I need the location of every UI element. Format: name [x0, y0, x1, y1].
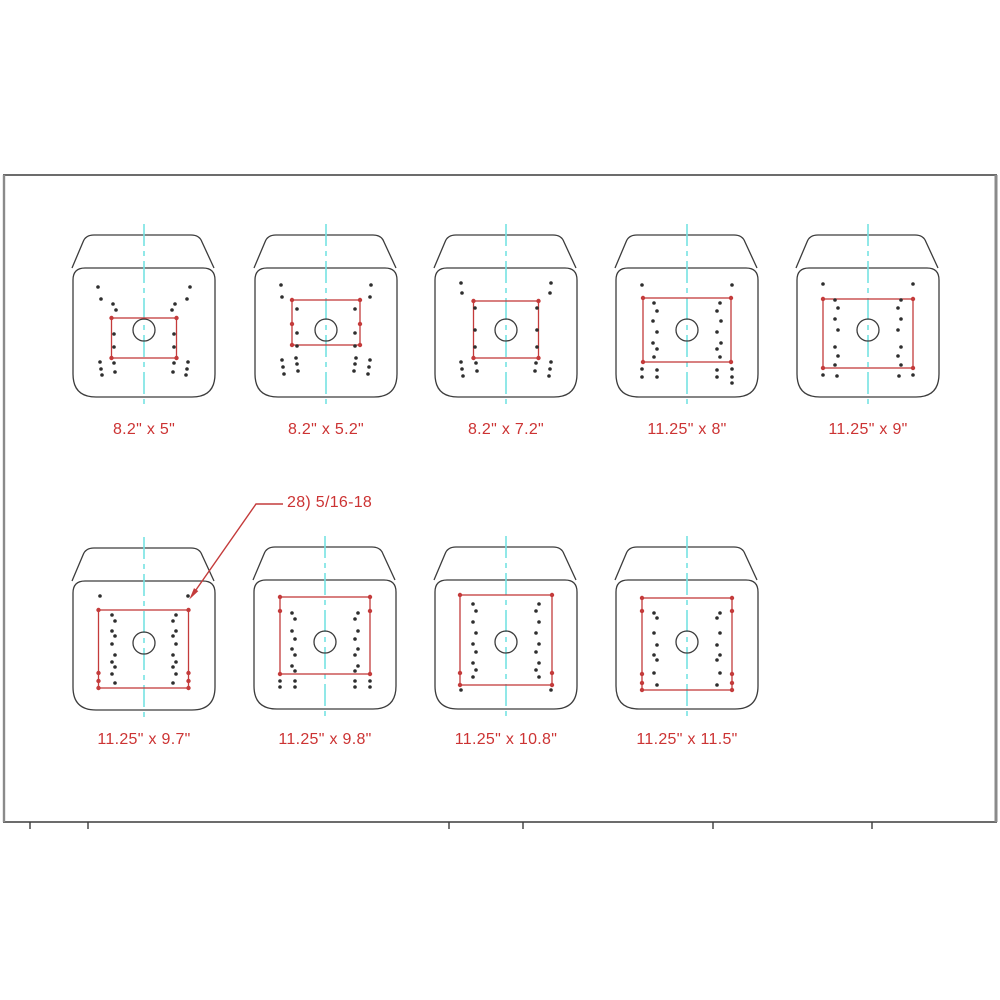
pattern-bolt-dot — [278, 609, 282, 613]
mounting-hole-dot — [537, 602, 541, 606]
seat-size-label-6: 11.25" x 9.7" — [97, 731, 190, 749]
mounting-hole-dot — [549, 281, 553, 285]
mounting-hole-dot — [353, 617, 357, 621]
mounting-hole-dot — [294, 356, 298, 360]
mounting-hole-dot — [460, 291, 464, 295]
mounting-hole-dot — [110, 672, 114, 676]
seat-size-label-9: 11.25" x 11.5" — [636, 731, 737, 749]
pattern-bolt-dot — [550, 683, 554, 687]
mounting-hole-dot — [368, 685, 372, 689]
mounting-hole-dot — [896, 354, 900, 358]
mounting-hole-dot — [715, 368, 719, 372]
mounting-hole-dot — [113, 665, 117, 669]
seat-size-label-7: 11.25" x 9.8" — [278, 731, 371, 749]
seat-back-flap-outline — [615, 235, 757, 268]
pattern-bolt-dot — [278, 595, 282, 599]
mounting-hole-dot — [174, 672, 178, 676]
mounting-hole-dot — [897, 374, 901, 378]
pattern-bolt-dot — [174, 356, 178, 360]
mounting-hole-dot — [280, 295, 284, 299]
mounting-hole-dot — [293, 617, 297, 621]
mounting-hole-dot — [896, 306, 900, 310]
mounting-hole-dot — [112, 345, 116, 349]
seat-size-label-5: 11.25" x 9" — [828, 421, 907, 439]
seat-back-flap-outline — [72, 548, 214, 581]
seat-size-label-3: 8.2" x 7.2" — [468, 421, 544, 439]
mounting-hole-dot — [534, 668, 538, 672]
mounting-hole-dot — [369, 283, 373, 287]
mounting-hole-dot — [171, 370, 175, 374]
mounting-hole-dot — [295, 344, 299, 348]
mounting-hole-dot — [718, 611, 722, 615]
mounting-hole-dot — [899, 298, 903, 302]
mounting-hole-dot — [471, 602, 475, 606]
mounting-hole-dot — [548, 291, 552, 295]
mounting-hole-dot — [473, 345, 477, 349]
mounting-hole-dot — [100, 373, 104, 377]
mounting-hole-dot — [354, 356, 358, 360]
mounting-hole-dot — [535, 345, 539, 349]
mounting-hole-dot — [715, 330, 719, 334]
mounting-hole-dot — [655, 375, 659, 379]
seat-back-flap-outline — [796, 235, 938, 268]
mounting-hole-dot — [655, 309, 659, 313]
pattern-bolt-dot — [730, 672, 734, 676]
mounting-hole-dot — [281, 365, 285, 369]
mounting-hole-dot — [110, 660, 114, 664]
pattern-bolt-dot — [640, 609, 644, 613]
mounting-hole-dot — [353, 344, 357, 348]
mounting-hole-dot — [471, 661, 475, 665]
mounting-hole-dot — [652, 671, 656, 675]
mounting-hole-dot — [98, 594, 102, 598]
pattern-bolt-dot — [729, 296, 733, 300]
mounting-hole-dot — [293, 679, 297, 683]
mounting-hole-dot — [535, 306, 539, 310]
pattern-bolt-dot — [458, 593, 462, 597]
mounting-hole-dot — [547, 374, 551, 378]
mounting-hole-dot — [353, 653, 357, 657]
mounting-hole-dot — [718, 355, 722, 359]
seat-drawing-9 — [615, 536, 758, 720]
pattern-bolt-dot — [290, 298, 294, 302]
pattern-bolt-dot — [730, 681, 734, 685]
mounting-hole-dot — [640, 283, 644, 287]
seat-drawing-2 — [254, 224, 397, 408]
mounting-hole-dot — [356, 611, 360, 615]
mounting-hole-dot — [295, 331, 299, 335]
mounting-hole-dot — [833, 345, 837, 349]
mounting-hole-dot — [184, 373, 188, 377]
pattern-bolt-dot — [186, 686, 190, 690]
mounting-hole-dot — [821, 282, 825, 286]
pattern-bolt-dot — [186, 608, 190, 612]
mounting-hole-dot — [652, 611, 656, 615]
mounting-hole-dot — [461, 374, 465, 378]
mounting-hole-dot — [821, 373, 825, 377]
mounting-hole-dot — [655, 658, 659, 662]
mounting-hole-dot — [836, 328, 840, 332]
seat-back-flap-outline — [253, 547, 395, 580]
mounting-hole-dot — [535, 328, 539, 332]
mounting-hole-dot — [548, 367, 552, 371]
mounting-hole-dot — [113, 619, 117, 623]
mounting-hole-dot — [715, 375, 719, 379]
mounting-hole-dot — [366, 372, 370, 376]
mounting-hole-dot — [533, 369, 537, 373]
pattern-bolt-dot — [730, 688, 734, 692]
pattern-bolt-dot — [536, 299, 540, 303]
pattern-bolt-dot — [536, 356, 540, 360]
mounting-hole-dot — [280, 358, 284, 362]
pattern-bolt-dot — [368, 609, 372, 613]
mounting-hole-dot — [460, 367, 464, 371]
mounting-hole-dot — [353, 679, 357, 683]
seat-back-flap-outline — [615, 547, 757, 580]
mounting-hole-dot — [718, 301, 722, 305]
mounting-hole-dot — [295, 362, 299, 366]
mounting-hole-dot — [473, 328, 477, 332]
mounting-hole-dot — [911, 373, 915, 377]
mounting-hole-dot — [174, 660, 178, 664]
mounting-hole-dot — [170, 308, 174, 312]
pattern-bolt-dot — [290, 322, 294, 326]
mounting-hole-dot — [98, 360, 102, 364]
mounting-hole-dot — [174, 642, 178, 646]
seat-drawing-1 — [72, 224, 215, 408]
mounting-hole-dot — [290, 647, 294, 651]
pattern-bolt-dot — [821, 297, 825, 301]
mounting-hole-dot — [836, 306, 840, 310]
seat-back-flap-outline — [254, 235, 396, 268]
mounting-hole-dot — [655, 330, 659, 334]
mounting-hole-dot — [114, 308, 118, 312]
pattern-bolt-dot — [640, 596, 644, 600]
seat-drawing-5 — [796, 224, 939, 408]
mounting-hole-dot — [278, 685, 282, 689]
mounting-hole-dot — [186, 360, 190, 364]
mounting-hole-dot — [353, 669, 357, 673]
mounting-hole-dot — [534, 361, 538, 365]
pattern-bolt-dot — [368, 672, 372, 676]
pattern-bolt-dot — [358, 298, 362, 302]
mounting-hole-dot — [715, 658, 719, 662]
pattern-bolt-dot — [186, 679, 190, 683]
mounting-hole-dot — [293, 669, 297, 673]
mounting-hole-dot — [290, 629, 294, 633]
mounting-hole-dot — [833, 298, 837, 302]
mounting-hole-dot — [534, 631, 538, 635]
mounting-hole-dot — [293, 637, 297, 641]
mounting-hole-dot — [293, 653, 297, 657]
mounting-hole-dot — [911, 282, 915, 286]
pattern-bolt-dot — [640, 688, 644, 692]
pattern-bolt-dot — [290, 343, 294, 347]
pattern-bolt-dot — [96, 686, 100, 690]
mounting-hole-dot — [110, 629, 114, 633]
mounting-hole-dot — [730, 381, 734, 385]
mounting-hole-dot — [899, 363, 903, 367]
pattern-bolt-dot — [358, 322, 362, 326]
mounting-hole-dot — [368, 358, 372, 362]
mounting-hole-dot — [171, 681, 175, 685]
mounting-hole-dot — [353, 307, 357, 311]
mounting-hole-dot — [715, 309, 719, 313]
mounting-hole-dot — [290, 611, 294, 615]
mounting-hole-dot — [474, 631, 478, 635]
pattern-bolt-dot — [640, 672, 644, 676]
mounting-hole-dot — [718, 671, 722, 675]
mounting-hole-dot — [111, 302, 115, 306]
pattern-bolt-dot — [550, 593, 554, 597]
mounting-hole-dot — [171, 619, 175, 623]
mounting-hole-dot — [171, 634, 175, 638]
pattern-bolt-dot — [458, 671, 462, 675]
seat-drawing-6 — [72, 537, 215, 721]
mounting-hole-dot — [652, 631, 656, 635]
mounting-hole-dot — [295, 307, 299, 311]
mounting-hole-dot — [352, 369, 356, 373]
mounting-hole-dot — [833, 363, 837, 367]
seat-drawing-4 — [615, 224, 758, 408]
mounting-hole-dot — [549, 360, 553, 364]
mounting-hole-dot — [188, 285, 192, 289]
mounting-hole-dot — [537, 620, 541, 624]
mounting-hole-dot — [367, 365, 371, 369]
mounting-hole-dot — [474, 650, 478, 654]
mounting-hole-dot — [899, 345, 903, 349]
mounting-hole-dot — [715, 347, 719, 351]
mounting-hole-dot — [172, 361, 176, 365]
mounting-hole-dot — [173, 302, 177, 306]
pattern-bolt-dot — [109, 356, 113, 360]
mounting-hole-dot — [730, 375, 734, 379]
mounting-hole-dot — [278, 679, 282, 683]
mounting-hole-dot — [835, 374, 839, 378]
seat-drawing-7 — [253, 536, 396, 720]
thread-spec-callout: 28) 5/16-18 — [287, 494, 372, 512]
mounting-hole-dot — [475, 369, 479, 373]
mounting-hole-dot — [113, 681, 117, 685]
pattern-bolt-dot — [186, 671, 190, 675]
seat-size-label-1: 8.2" x 5" — [113, 421, 175, 439]
drawing-sheet: 8.2" x 5" 8.2" x 5.2" 8.2" x 7.2" 11.25"… — [0, 0, 1000, 1000]
mounting-hole-dot — [353, 637, 357, 641]
mounting-hole-dot — [652, 355, 656, 359]
pattern-bolt-dot — [730, 596, 734, 600]
mounting-hole-dot — [833, 317, 837, 321]
mounting-hole-dot — [113, 634, 117, 638]
seat-drawing-8 — [434, 536, 577, 720]
mounting-hole-dot — [174, 629, 178, 633]
mounting-hole-dot — [293, 685, 297, 689]
pattern-bolt-dot — [96, 679, 100, 683]
pattern-bolt-dot — [174, 316, 178, 320]
mounting-hole-dot — [719, 319, 723, 323]
mounting-hole-dot — [549, 688, 553, 692]
pattern-bolt-dot — [368, 595, 372, 599]
mounting-hole-dot — [112, 332, 116, 336]
mounting-hole-dot — [353, 685, 357, 689]
mounting-hole-dot — [474, 609, 478, 613]
mounting-hole-dot — [113, 653, 117, 657]
mounting-hole-dot — [655, 347, 659, 351]
pattern-bolt-dot — [278, 672, 282, 676]
mounting-hole-dot — [356, 664, 360, 668]
pattern-bolt-dot — [730, 609, 734, 613]
mounting-hole-dot — [459, 360, 463, 364]
mounting-hole-dot — [279, 283, 283, 287]
mounting-hole-dot — [655, 616, 659, 620]
mounting-hole-dot — [356, 647, 360, 651]
pattern-bolt-dot — [358, 343, 362, 347]
mounting-hole-dot — [171, 665, 175, 669]
mounting-hole-dot — [474, 668, 478, 672]
pattern-bolt-dot — [550, 671, 554, 675]
mounting-hole-dot — [899, 317, 903, 321]
mounting-hole-dot — [174, 613, 178, 617]
mounting-hole-dot — [171, 653, 175, 657]
mounting-hole-dot — [186, 594, 190, 598]
pattern-bolt-dot — [458, 683, 462, 687]
pattern-bolt-dot — [471, 299, 475, 303]
mounting-hole-dot — [110, 613, 114, 617]
mounting-hole-dot — [730, 283, 734, 287]
mounting-hole-dot — [655, 368, 659, 372]
mounting-hole-dot — [534, 609, 538, 613]
mounting-hole-dot — [99, 297, 103, 301]
seat-drawing-3 — [434, 224, 577, 408]
mounting-hole-dot — [113, 370, 117, 374]
mounting-hole-dot — [471, 675, 475, 679]
mounting-hole-dot — [290, 664, 294, 668]
pattern-bolt-dot — [641, 296, 645, 300]
mounting-hole-dot — [471, 620, 475, 624]
mounting-hole-dot — [655, 643, 659, 647]
seat-size-label-8: 11.25" x 10.8" — [455, 731, 557, 749]
mounting-hole-dot — [896, 328, 900, 332]
pattern-bolt-dot — [640, 681, 644, 685]
mounting-hole-dot — [719, 341, 723, 345]
mounting-hole-dot — [537, 675, 541, 679]
pattern-bolt-dot — [641, 360, 645, 364]
mounting-hole-dot — [99, 367, 103, 371]
seat-back-flap-outline — [434, 235, 576, 268]
mounting-hole-dot — [715, 683, 719, 687]
mounting-hole-dot — [110, 642, 114, 646]
seat-size-label-4: 11.25" x 8" — [647, 421, 726, 439]
pattern-bolt-dot — [911, 366, 915, 370]
pattern-bolt-dot — [911, 297, 915, 301]
pattern-bolt-dot — [109, 316, 113, 320]
mounting-hole-dot — [296, 369, 300, 373]
mounting-hole-dot — [459, 688, 463, 692]
mounting-hole-dot — [718, 631, 722, 635]
mounting-hole-dot — [836, 354, 840, 358]
mounting-hole-dot — [534, 650, 538, 654]
mounting-hole-dot — [172, 332, 176, 336]
mounting-hole-dot — [473, 306, 477, 310]
pattern-bolt-dot — [96, 608, 100, 612]
mounting-hole-dot — [730, 367, 734, 371]
mounting-hole-dot — [353, 362, 357, 366]
mounting-hole-dot — [652, 301, 656, 305]
seat-back-flap-outline — [72, 235, 214, 268]
mounting-hole-dot — [96, 285, 100, 289]
mounting-hole-dot — [368, 295, 372, 299]
mounting-hole-dot — [715, 616, 719, 620]
seat-size-label-2: 8.2" x 5.2" — [288, 421, 364, 439]
mounting-hole-dot — [353, 331, 357, 335]
mounting-hole-dot — [368, 679, 372, 683]
mounting-hole-dot — [651, 319, 655, 323]
mounting-hole-dot — [459, 281, 463, 285]
pattern-bolt-dot — [729, 360, 733, 364]
mounting-hole-dot — [655, 683, 659, 687]
mounting-hole-dot — [718, 653, 722, 657]
mounting-hole-dot — [474, 361, 478, 365]
mounting-hole-dot — [282, 372, 286, 376]
mounting-hole-dot — [112, 361, 116, 365]
pattern-bolt-dot — [471, 356, 475, 360]
drawing-canvas — [0, 0, 1000, 1000]
mounting-hole-dot — [537, 661, 541, 665]
mounting-hole-dot — [185, 297, 189, 301]
mounting-hole-dot — [172, 345, 176, 349]
mounting-hole-dot — [715, 643, 719, 647]
mounting-hole-dot — [640, 375, 644, 379]
pattern-bolt-dot — [96, 671, 100, 675]
mounting-hole-dot — [652, 653, 656, 657]
mounting-hole-dot — [651, 341, 655, 345]
mounting-hole-dot — [185, 367, 189, 371]
seat-back-flap-outline — [434, 547, 576, 580]
mounting-hole-dot — [640, 367, 644, 371]
pattern-bolt-dot — [821, 366, 825, 370]
mounting-hole-dot — [537, 642, 541, 646]
mounting-hole-dot — [471, 642, 475, 646]
mounting-hole-dot — [356, 629, 360, 633]
